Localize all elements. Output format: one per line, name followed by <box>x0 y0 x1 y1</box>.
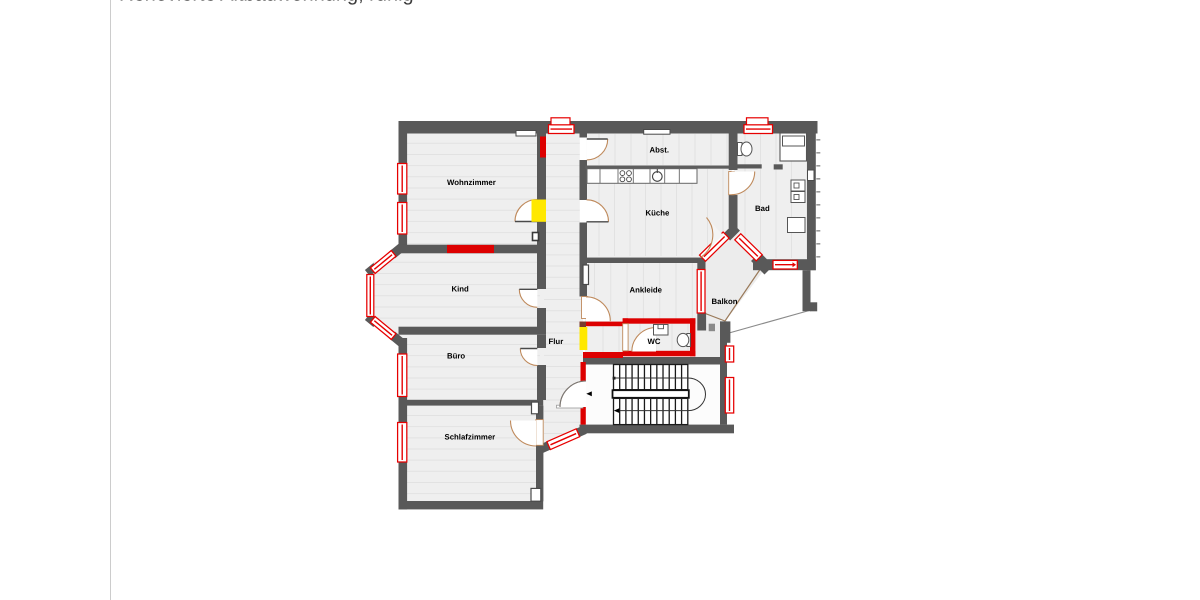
svg-text:Küche: Küche <box>646 209 670 218</box>
svg-text:Balkon: Balkon <box>712 297 738 306</box>
svg-text:WC: WC <box>648 337 661 346</box>
svg-text:Ankleide: Ankleide <box>630 285 663 294</box>
svg-text:Schlafzimmer: Schlafzimmer <box>445 433 496 442</box>
svg-text:Flur: Flur <box>549 337 564 346</box>
svg-text:Bad: Bad <box>755 204 770 213</box>
svg-text:Renovierte Altbauwohnung, ruhi: Renovierte Altbauwohnung, ruhig <box>119 0 414 6</box>
svg-text:Kind: Kind <box>452 284 470 293</box>
svg-text:Wohnzimmer: Wohnzimmer <box>447 178 496 187</box>
svg-text:Büro: Büro <box>447 352 465 361</box>
svg-text:Abst.: Abst. <box>650 146 670 155</box>
